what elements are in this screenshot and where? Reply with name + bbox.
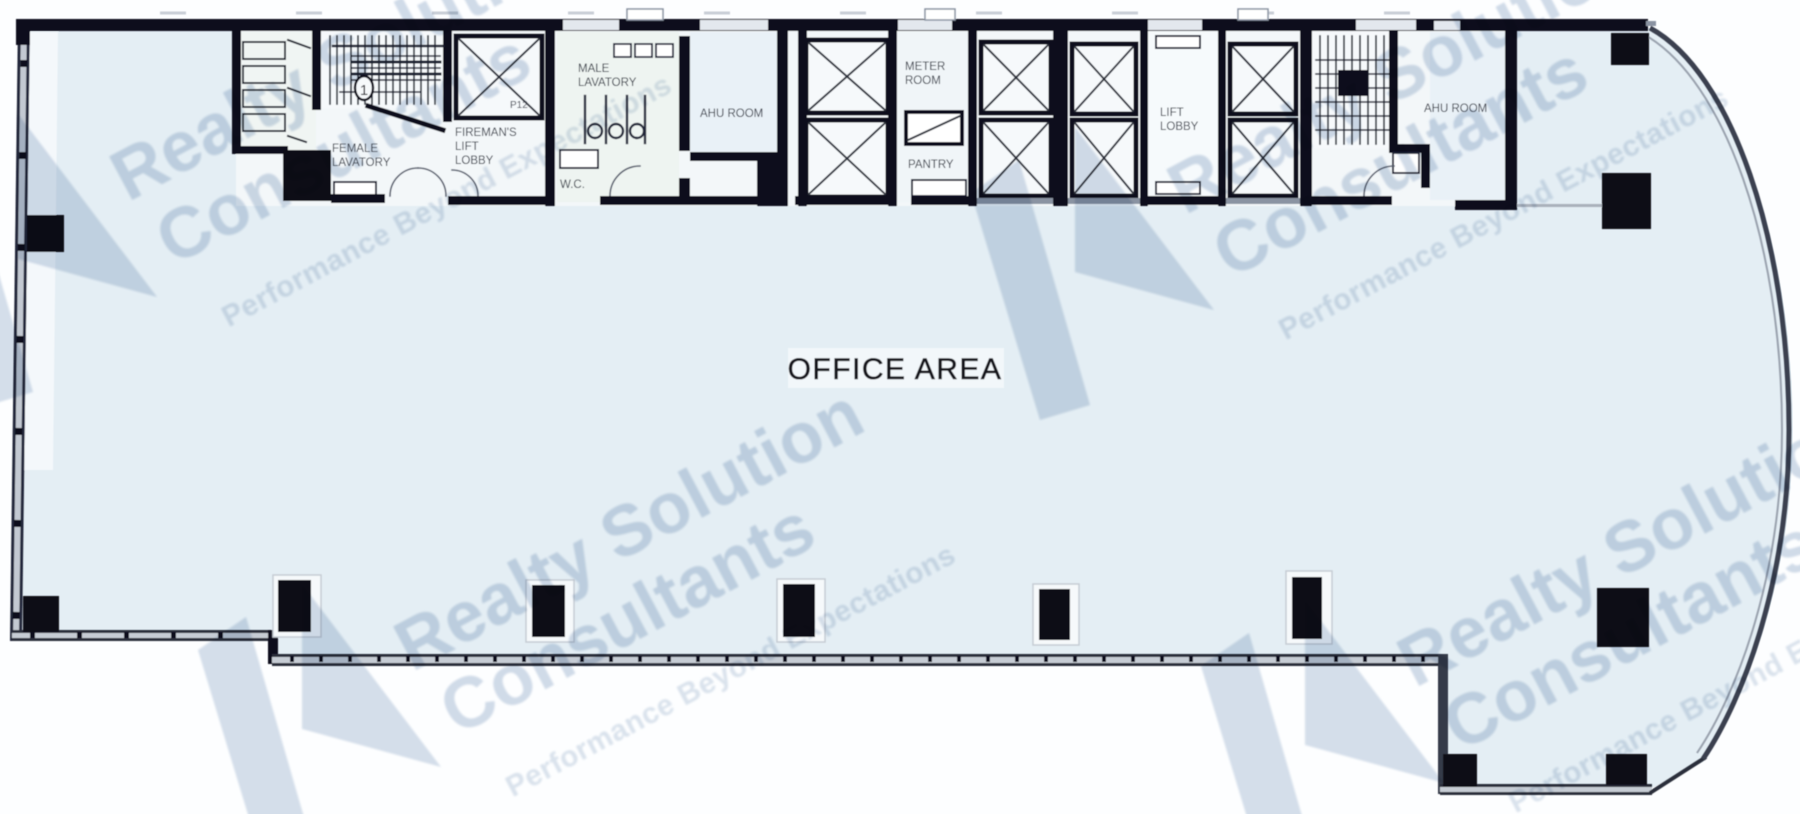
svg-text:LIFT: LIFT [455, 141, 479, 153]
svg-text:LIFT: LIFT [1160, 107, 1184, 119]
svg-text:OFFICE AREA: OFFICE AREA [788, 353, 1003, 386]
svg-text:W.C.: W.C. [560, 179, 585, 191]
svg-text:LOBBY: LOBBY [1160, 121, 1199, 133]
svg-text:ROOM: ROOM [905, 75, 941, 87]
svg-text:AHU ROOM: AHU ROOM [700, 108, 763, 120]
svg-text:MALE: MALE [578, 63, 610, 75]
svg-text:METER: METER [905, 61, 945, 73]
svg-text:PANTRY: PANTRY [908, 159, 954, 171]
